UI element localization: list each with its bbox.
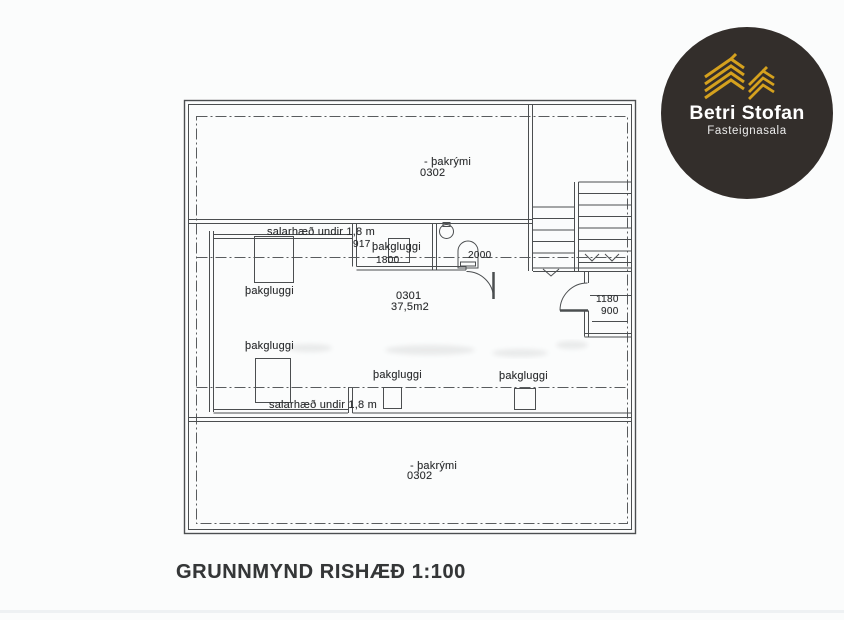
scan-artifacts [288,341,588,357]
skylight-square [255,237,294,283]
skylight-label-dormer-top: þakgluggi [372,241,421,253]
dimension-900: 900 [601,306,619,317]
skylight-square [515,389,536,410]
top-dividing-wall [188,220,532,224]
sink-icon [440,223,454,239]
staircase [529,104,632,276]
logo-brand-text: Betri Stofan [689,102,804,124]
bottom-dividing-wall [188,418,632,422]
skylight-square [384,388,402,409]
skylight-label-bottom-mid: þakgluggi [373,369,422,381]
scan-edge-streak [0,610,844,613]
drawing-title: GRUNNMYND RISHÆÐ 1:100 [176,561,466,584]
skylight-label-left-top: þakgluggi [245,285,294,297]
ceiling-note-top: salarhæð undir 1,8 m [267,226,375,238]
dimension-1800: 1800 [376,255,399,266]
dimension-2000: 2000 [468,250,491,261]
skylight-label-left-bottom: þakgluggi [245,340,294,352]
attic-top-number: 0302 [420,167,445,179]
logo-tagline-text: Fasteignasala [707,125,786,137]
attic-bottom-number: 0302 [407,470,432,482]
roof-height-dashed-lines [197,258,628,388]
dimension-1180: 1180 [596,294,619,305]
dimension-917: 917 [353,239,371,250]
main-room-area: 37,5m2 [391,301,429,313]
skylight-label-bottom-right: þakgluggi [499,370,548,382]
bathroom-door-swing-arc [467,272,494,299]
hall-door-swing-arc [560,283,588,311]
skylight-square [256,359,291,403]
betri-stofan-logo: Betri Stofan Fasteignasala [657,23,837,203]
stair-arrow-icon [543,269,559,276]
ceiling-note-bottom: salarhæð undir 1,8 m [269,399,377,411]
